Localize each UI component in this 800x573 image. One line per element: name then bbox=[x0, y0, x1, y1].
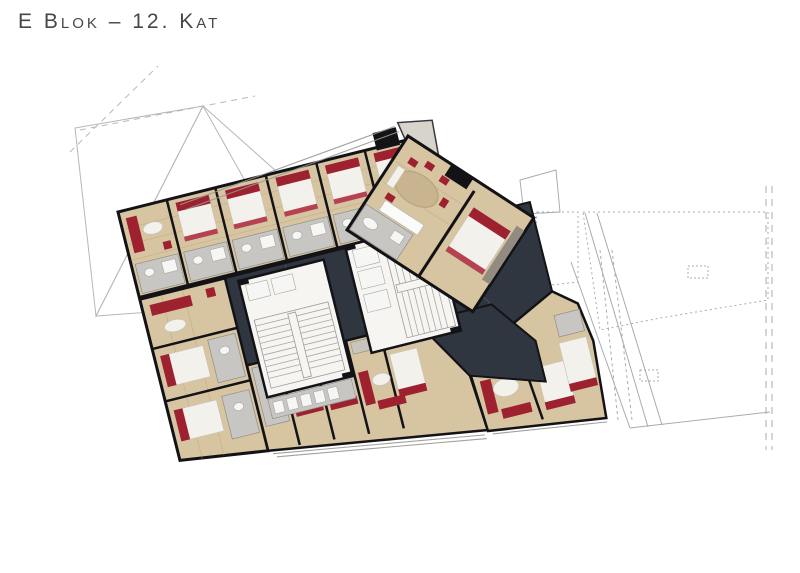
building-main-slab bbox=[113, 90, 613, 525]
floor-plan-drawing bbox=[0, 0, 800, 573]
floor-plan-page: E Blok – 12. Kat bbox=[0, 0, 800, 573]
